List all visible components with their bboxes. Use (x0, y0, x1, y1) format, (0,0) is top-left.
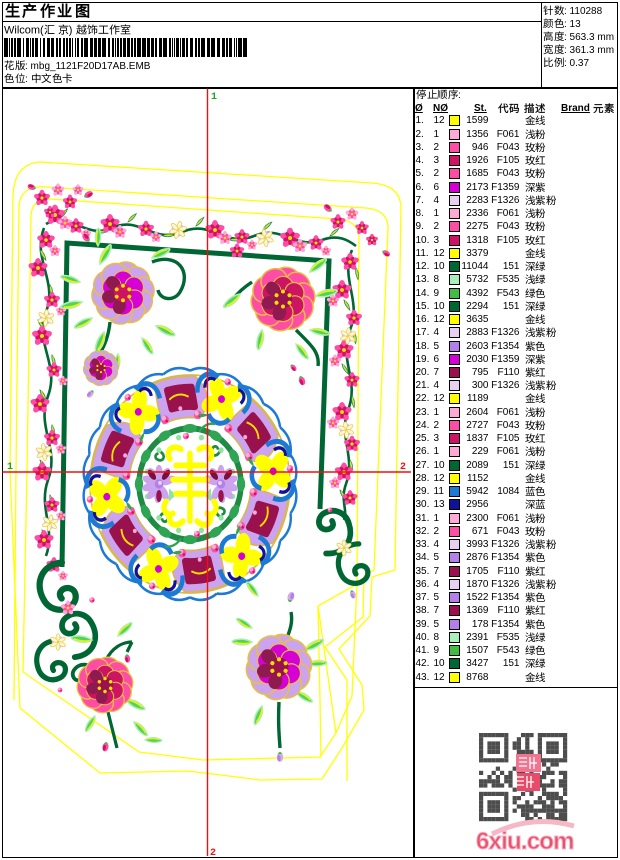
svg-text:6xiu.com: 6xiu.com (476, 828, 574, 855)
svg-text:2: 2 (210, 848, 216, 859)
svg-text:1: 1 (211, 92, 217, 103)
